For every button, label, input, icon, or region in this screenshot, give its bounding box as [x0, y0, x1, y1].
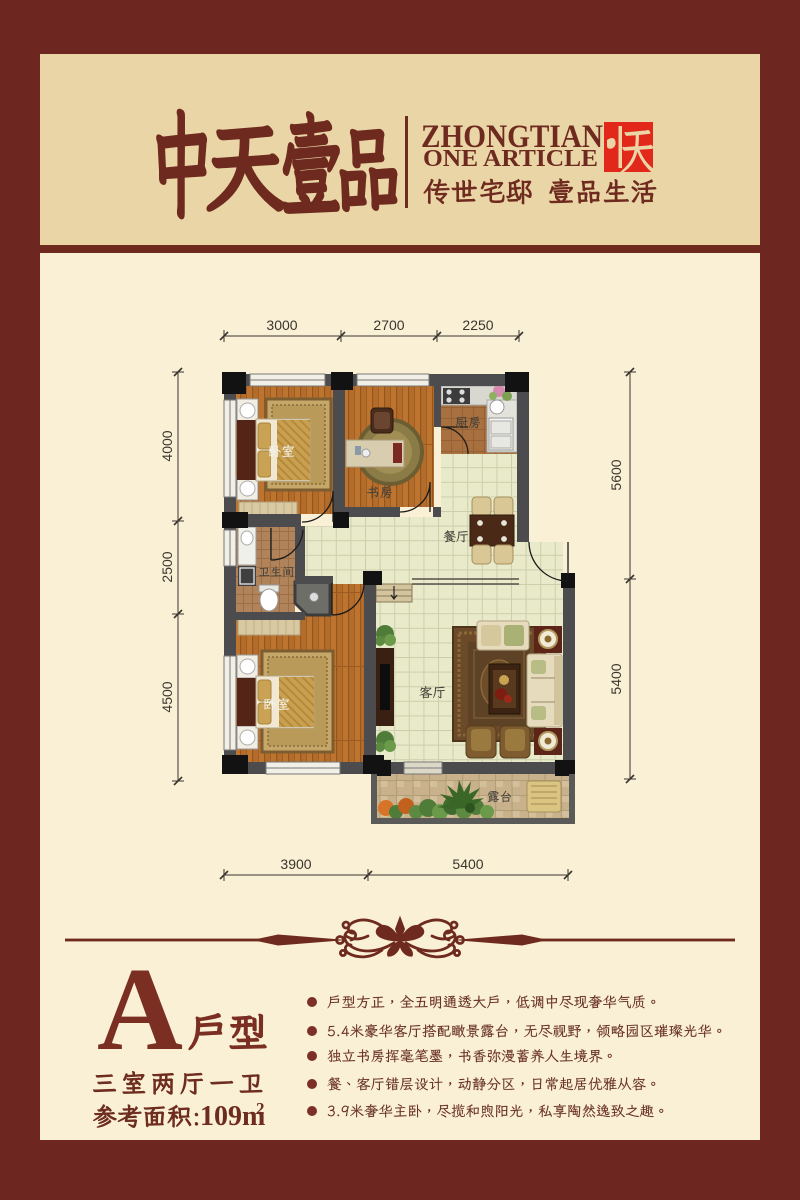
- svg-text:5400: 5400: [452, 856, 483, 872]
- svg-text:2: 2: [256, 1099, 265, 1118]
- svg-text:2500: 2500: [159, 551, 175, 582]
- svg-text:4500: 4500: [159, 681, 175, 712]
- svg-text:3000: 3000: [266, 317, 297, 333]
- svg-text:2250: 2250: [462, 317, 493, 333]
- svg-text:5400: 5400: [608, 663, 624, 694]
- svg-text:2700: 2700: [373, 317, 404, 333]
- svg-text:4000: 4000: [159, 430, 175, 461]
- svg-text:ONE ARTICLE: ONE ARTICLE: [423, 146, 598, 172]
- svg-text:5600: 5600: [608, 459, 624, 490]
- svg-text:A: A: [97, 960, 183, 1075]
- svg-text:3900: 3900: [280, 856, 311, 872]
